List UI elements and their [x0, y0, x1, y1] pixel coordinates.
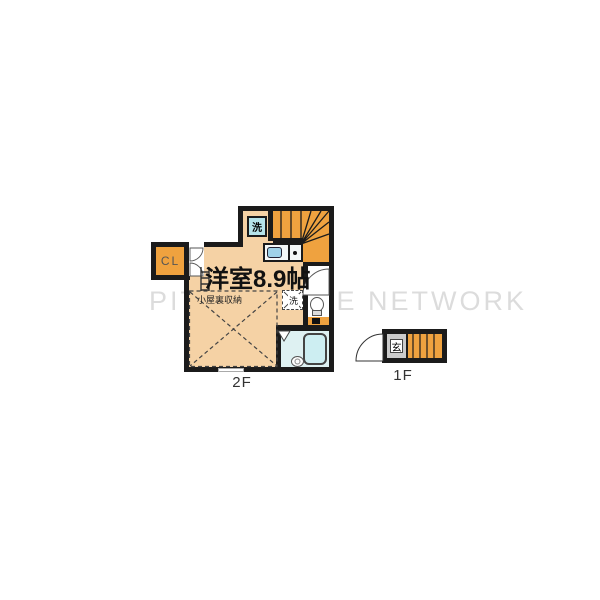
entrance-door-arc-icon	[356, 334, 383, 361]
wall	[238, 206, 334, 211]
genkan-label-box: 玄	[390, 339, 403, 353]
room-label: 洋室8.9帖	[205, 259, 310, 294]
washing-machine-icon: 洗	[247, 216, 267, 237]
wall	[329, 206, 334, 372]
wall	[276, 325, 334, 331]
floor-label-2f: 2F	[220, 374, 264, 391]
counter-divider	[288, 245, 290, 260]
wall	[276, 325, 281, 372]
stove-dot-icon	[293, 251, 297, 255]
genkan-label: 玄	[392, 339, 402, 354]
wall	[204, 242, 243, 247]
window	[218, 368, 244, 372]
floor-label-1f: 1F	[383, 367, 423, 384]
closet-door-zone	[189, 242, 204, 276]
wall	[268, 211, 273, 241]
closet-label: CL	[161, 254, 180, 268]
washbowl-icon	[291, 356, 304, 367]
wall	[238, 206, 243, 247]
toilet-step-box	[312, 318, 320, 324]
toilet-base	[312, 310, 322, 316]
closet-cl: CL	[156, 247, 185, 275]
washer-label: 洗	[252, 219, 262, 234]
wall	[184, 367, 334, 372]
stairs-1f	[406, 334, 442, 358]
sink-icon	[267, 247, 282, 258]
bathtub-icon	[303, 333, 327, 365]
attic-label: 小屋裏収納	[197, 293, 242, 306]
floorplan-canvas: PITAT HOUSE NETWORK CL 洗 玄	[0, 0, 600, 600]
washstand-label: 洗	[288, 294, 299, 307]
